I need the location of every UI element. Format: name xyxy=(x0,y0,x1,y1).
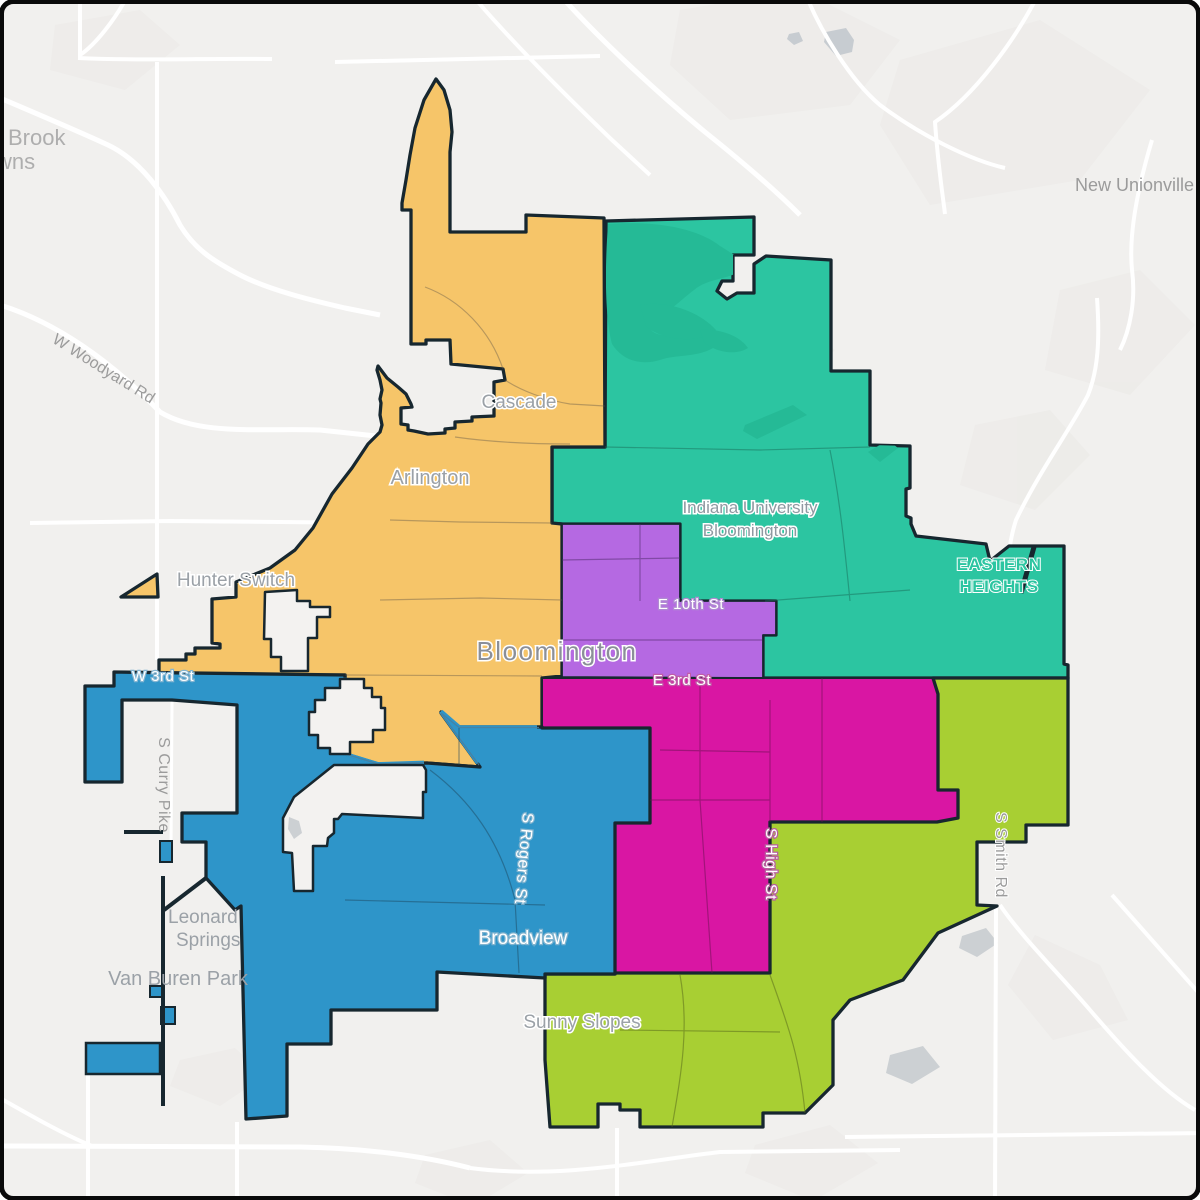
svg-text:Cascade: Cascade xyxy=(482,392,557,413)
svg-text:S Curry Pike: S Curry Pike xyxy=(155,737,172,833)
svg-text:Sunny Slopes: Sunny Slopes xyxy=(523,1012,640,1033)
svg-text:Arlington: Arlington xyxy=(391,467,470,489)
svg-text:New Unionville: New Unionville xyxy=(1075,175,1194,195)
svg-text:Brook: Brook xyxy=(8,125,66,150)
svg-text:Bloomington: Bloomington xyxy=(476,636,637,666)
svg-text:Bloomington: Bloomington xyxy=(703,521,798,540)
svg-text:S Smith Rd: S Smith Rd xyxy=(992,812,1009,898)
svg-text:E 3rd St: E 3rd St xyxy=(653,672,712,689)
svg-text:Leonard: Leonard xyxy=(168,907,238,928)
svg-text:E 10th St: E 10th St xyxy=(658,596,725,613)
svg-text:HEIGHTS: HEIGHTS xyxy=(959,577,1038,596)
svg-text:Broadview: Broadview xyxy=(479,928,568,949)
svg-text:S High St: S High St xyxy=(762,828,779,900)
svg-text:wns: wns xyxy=(0,149,35,174)
svg-text:EASTERN: EASTERN xyxy=(957,555,1042,574)
svg-text:W 3rd St: W 3rd St xyxy=(132,668,195,685)
svg-text:Van Buren Park: Van Buren Park xyxy=(108,968,249,990)
svg-text:Indiana University: Indiana University xyxy=(682,498,818,517)
svg-text:Springs: Springs xyxy=(176,930,240,951)
svg-text:Hunter Switch: Hunter Switch xyxy=(177,570,295,591)
